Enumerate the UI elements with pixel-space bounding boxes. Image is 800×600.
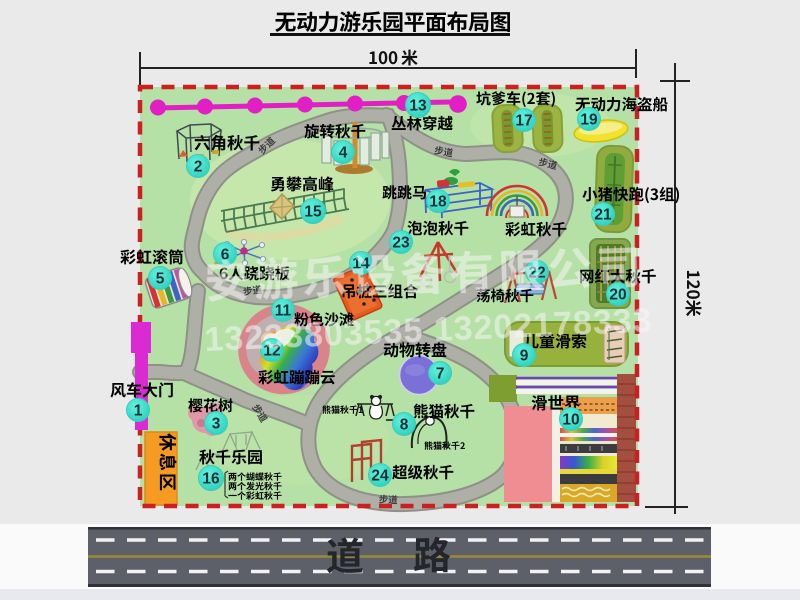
svg-text:4: 4 <box>339 144 348 161</box>
svg-text:3: 3 <box>212 415 221 432</box>
svg-text:21: 21 <box>594 206 612 223</box>
svg-text:8: 8 <box>400 416 409 433</box>
svg-text:15: 15 <box>304 203 322 220</box>
svg-text:9: 9 <box>520 347 529 364</box>
svg-text:19: 19 <box>580 111 598 128</box>
svg-text:7: 7 <box>436 365 445 382</box>
svg-text:18: 18 <box>429 193 447 210</box>
svg-text:20: 20 <box>609 286 626 303</box>
svg-text:16: 16 <box>202 470 220 487</box>
svg-text:1: 1 <box>134 402 143 419</box>
svg-text:10: 10 <box>562 411 579 428</box>
svg-text:5: 5 <box>156 270 165 287</box>
svg-text:23: 23 <box>392 234 410 251</box>
svg-text:13: 13 <box>409 97 427 114</box>
svg-text:24: 24 <box>371 467 389 484</box>
svg-text:2: 2 <box>194 158 203 175</box>
svg-text:17: 17 <box>515 112 532 129</box>
